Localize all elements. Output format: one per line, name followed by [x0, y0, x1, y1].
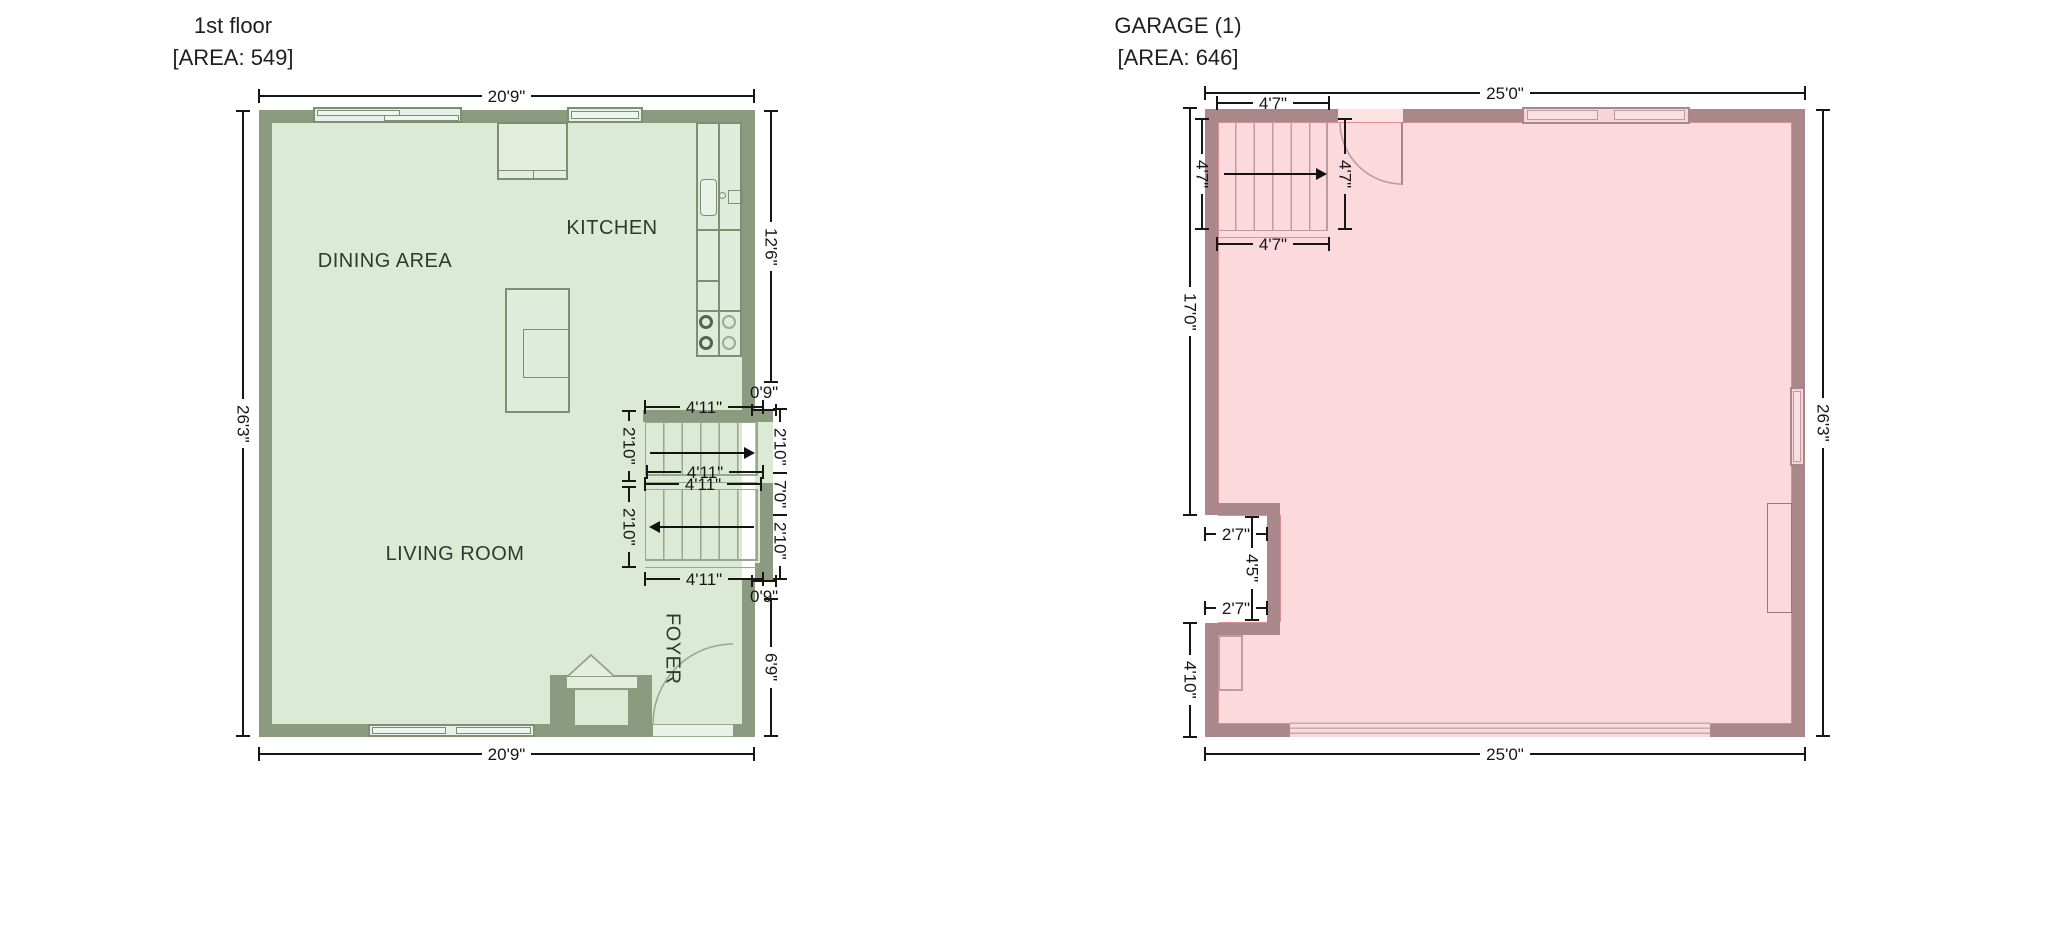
- window-pane: [372, 727, 446, 734]
- faucet-base: [728, 190, 743, 204]
- closet: [1218, 635, 1243, 691]
- stair-direction-arrow: [1224, 173, 1318, 175]
- refrigerator: [497, 122, 568, 180]
- dim-garage-bottom: 25'0": [1204, 743, 1806, 765]
- dim-kitchen-right: 12'6": [760, 110, 782, 383]
- garage-floor: [1280, 515, 1792, 622]
- garage-stair-run: [1218, 122, 1328, 230]
- window-pane: [571, 111, 639, 119]
- dim-stair-bottom: 4'11": [644, 568, 764, 590]
- window-pane: [1793, 391, 1801, 462]
- dim-stair-run-lower: 2'10": [618, 486, 640, 568]
- dim-garage-stair-left: 4'7": [1191, 118, 1213, 230]
- floor1-area-label: [AREA: 549]: [133, 42, 333, 74]
- dim-garage-stair-bottom: 4'7": [1216, 233, 1330, 255]
- faucet-icon: [719, 192, 726, 199]
- gable-icon: [564, 650, 618, 678]
- garage-door-band: [1290, 719, 1710, 737]
- stair-edge: [645, 560, 758, 568]
- storage-unit: [1767, 503, 1792, 613]
- dim-garage-left-lower: 4'10": [1179, 622, 1201, 738]
- kitchen-island: [505, 288, 570, 413]
- dim-floor1-top: 20'9": [258, 85, 755, 107]
- room-label-kitchen: KITCHEN: [542, 217, 682, 240]
- sink: [700, 179, 717, 216]
- window-pane: [1614, 110, 1685, 120]
- floor1-title: 1st floor: [133, 10, 333, 42]
- room-label-foyer: FOYER: [659, 603, 685, 695]
- window-pane: [456, 727, 531, 734]
- garage-area-label: [AREA: 646]: [1078, 42, 1278, 74]
- stove-burner: [722, 315, 736, 329]
- stove-burner: [699, 315, 713, 329]
- dim-stair-mid-lower: 4'11": [644, 473, 762, 495]
- wall-right-upper: [742, 110, 755, 412]
- dim-garage-right: 26'3": [1812, 109, 1834, 737]
- floor-edge: [1280, 515, 1281, 622]
- dim-bump-chain: 2'10" 7'0" 2'10": [769, 408, 791, 580]
- garage-notch-right: [1267, 503, 1280, 635]
- room-label-dining: DINING AREA: [285, 250, 485, 273]
- dim-stair-top: 4'11": [644, 396, 764, 418]
- window-pane: [384, 115, 459, 121]
- garage-floor: [1218, 622, 1792, 724]
- stove-burner: [722, 336, 736, 350]
- dim-notch-bottom: 2'7": [1204, 597, 1268, 619]
- room-label-living: LIVING ROOM: [355, 543, 555, 566]
- garage-title-block: GARAGE (1) [AREA: 646]: [1078, 10, 1278, 74]
- dim-floor1-left: 26'3": [232, 110, 254, 737]
- stair-direction-arrow: [650, 452, 746, 454]
- dim-stair-run-upper: 2'10": [618, 410, 640, 482]
- floorplan-canvas: 1st floor [AREA: 549]: [0, 0, 2048, 929]
- stair-run-lower: [645, 489, 758, 560]
- dim-floor1-bottom: 20'9": [258, 743, 755, 765]
- dim-foyer-right: 6'9": [760, 598, 782, 737]
- stove-burner: [699, 336, 713, 350]
- garage-wall-left-lower: [1205, 623, 1218, 737]
- dim-garage-stair-right: 4'7": [1334, 118, 1356, 230]
- stair-direction-arrow: [658, 526, 754, 528]
- entry-porch-interior: [575, 690, 628, 725]
- garage-title: GARAGE (1): [1078, 10, 1278, 42]
- floor1-title-block: 1st floor [AREA: 549]: [133, 10, 333, 74]
- window-pane: [1527, 110, 1598, 120]
- wall-left: [259, 110, 272, 737]
- dim-garage-stair-top: 4'7": [1216, 92, 1330, 114]
